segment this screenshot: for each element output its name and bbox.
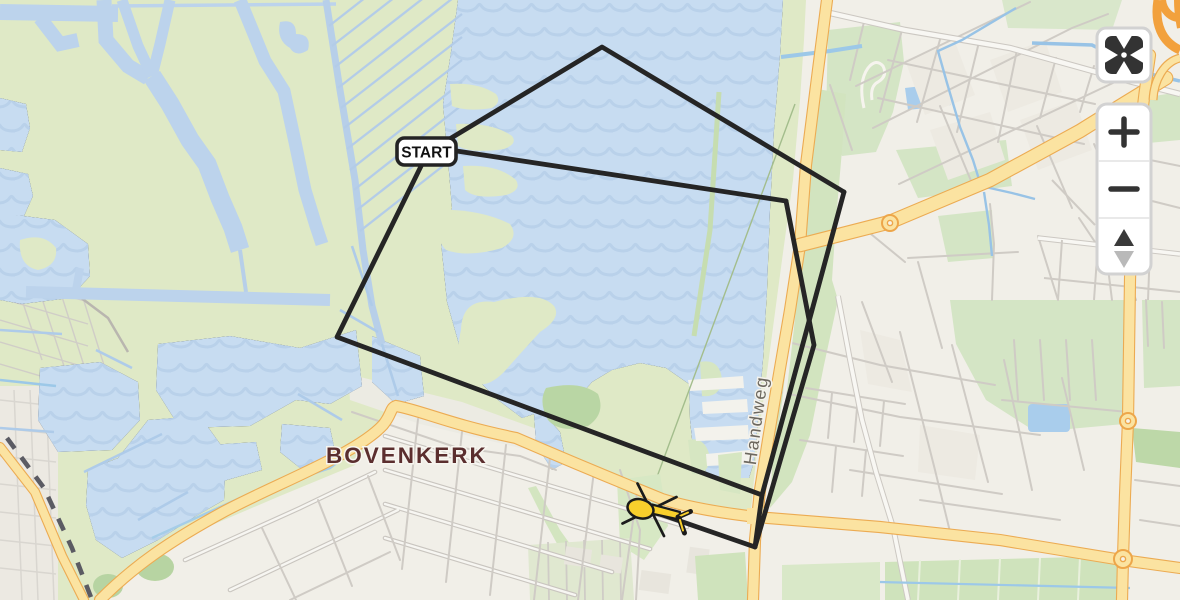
svg-text:BOVENKERK: BOVENKERK xyxy=(326,443,488,468)
svg-text:START: START xyxy=(401,145,452,162)
